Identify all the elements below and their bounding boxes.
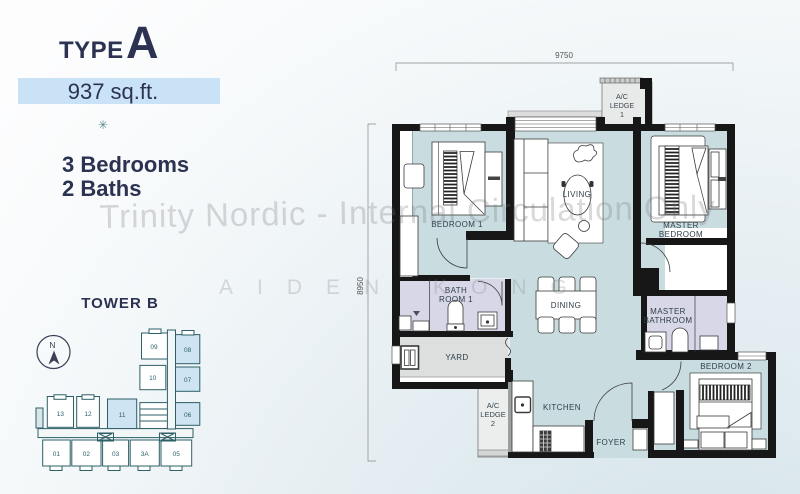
svg-text:MASTER: MASTER (650, 307, 686, 316)
svg-text:DINING: DINING (551, 301, 581, 310)
svg-text:1: 1 (620, 110, 624, 119)
svg-text:YARD: YARD (445, 353, 468, 362)
svg-text:9750: 9750 (555, 51, 573, 60)
svg-text:LEDGE: LEDGE (480, 410, 505, 419)
svg-text:A/C: A/C (487, 401, 500, 410)
svg-text:BEDROOM 2: BEDROOM 2 (700, 362, 752, 371)
svg-text:BATHROOM: BATHROOM (644, 316, 693, 325)
svg-text:KITCHEN: KITCHEN (543, 403, 581, 412)
svg-text:BEDROOM: BEDROOM (659, 230, 703, 239)
svg-text:A/C: A/C (616, 92, 628, 101)
svg-text:2: 2 (491, 419, 495, 428)
svg-text:FOYER: FOYER (596, 438, 626, 447)
svg-text:LEDGE: LEDGE (610, 101, 635, 110)
